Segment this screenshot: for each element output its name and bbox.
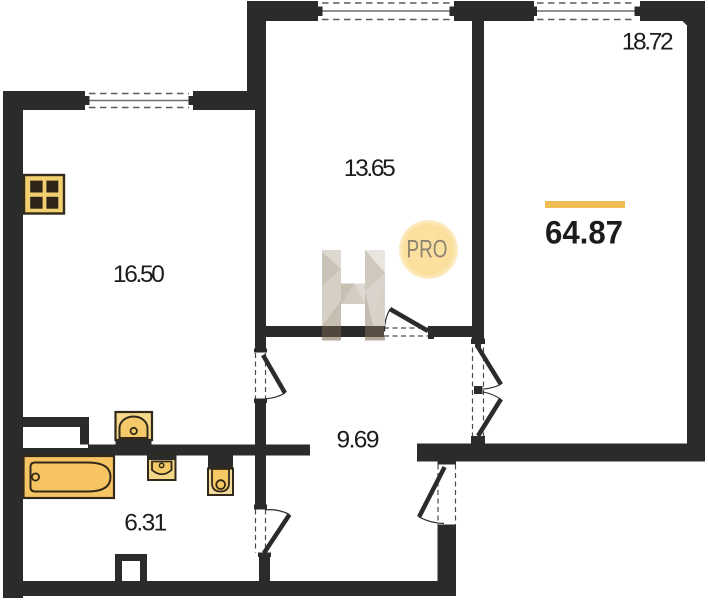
svg-text:64.87: 64.87	[545, 215, 623, 251]
svg-text:13.65: 13.65	[344, 155, 396, 182]
svg-text:16.50: 16.50	[113, 261, 165, 288]
svg-text:18.72: 18.72	[622, 29, 674, 56]
svg-text:PRO: PRO	[407, 236, 448, 264]
svg-text:6.31: 6.31	[124, 510, 167, 537]
svg-text:9.69: 9.69	[337, 427, 380, 454]
